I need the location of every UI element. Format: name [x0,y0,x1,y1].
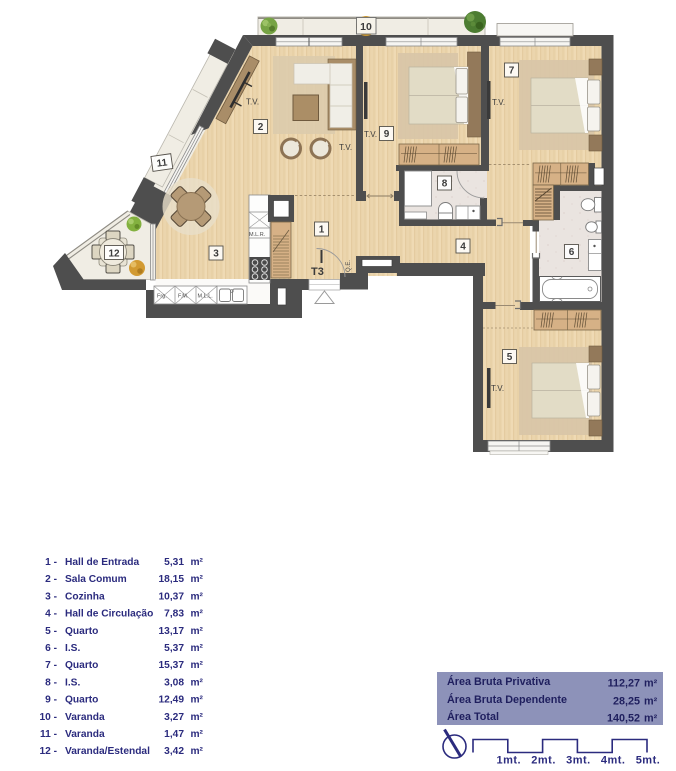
svg-text:m²: m² [191,609,204,620]
svg-text:M.L.L.: M.L.L. [198,294,214,300]
svg-text:T.V.: T.V. [492,98,505,107]
svg-text:m²: m² [191,677,204,688]
svg-text:Hall de Entrada: Hall de Entrada [65,557,139,568]
svg-text:9: 9 [384,129,390,140]
svg-text:5,31: 5,31 [164,557,184,568]
svg-text:5 -: 5 - [45,626,57,637]
svg-text:2: 2 [258,122,264,133]
svg-text:I.S.: I.S. [65,643,80,654]
svg-text:6: 6 [569,247,575,258]
svg-text:Varanda/Estendal: Varanda/Estendal [65,746,150,757]
svg-text:8 -: 8 - [45,677,57,688]
svg-text:F.M.: F.M. [178,294,189,300]
svg-text:7,83: 7,83 [164,609,184,620]
svg-text:3,27: 3,27 [164,712,184,723]
svg-text:112,27: 112,27 [608,678,640,690]
svg-text:m²: m² [191,729,204,740]
svg-text:I.S.: I.S. [65,677,80,688]
svg-text:13,17: 13,17 [159,626,185,637]
svg-text:M.L.R.: M.L.R. [249,232,266,238]
svg-text:T3: T3 [311,266,324,278]
svg-text:28,25: 28,25 [613,696,640,708]
svg-text:11: 11 [156,157,168,169]
svg-text:7 -: 7 - [45,660,57,671]
svg-text:m²: m² [191,712,204,723]
svg-text:1 -: 1 - [45,557,57,568]
svg-text:10,37: 10,37 [159,591,185,602]
svg-text:3,42: 3,42 [164,746,184,757]
svg-text:Área Bruta Privativa: Área Bruta Privativa [447,675,551,688]
svg-text:3 -: 3 - [45,591,57,602]
svg-text:T.V.: T.V. [246,98,259,107]
svg-text:2mt.: 2mt. [531,755,556,767]
svg-text:Varanda: Varanda [65,712,105,723]
svg-text:7: 7 [509,66,515,77]
svg-text:Quarto: Quarto [65,660,98,671]
svg-text:11 -: 11 - [40,729,57,740]
svg-text:Sala Comum: Sala Comum [65,574,127,585]
svg-text:m²: m² [191,557,204,568]
svg-text:m²: m² [191,626,204,637]
svg-text:1: 1 [319,225,325,236]
svg-text:1,47: 1,47 [164,729,184,740]
svg-text:Q.E.: Q.E. [346,260,352,272]
svg-text:Varanda: Varanda [65,729,105,740]
svg-text:10: 10 [360,21,372,33]
svg-text:5,37: 5,37 [164,643,184,654]
svg-text:8: 8 [442,179,448,190]
svg-text:Quarto: Quarto [65,695,98,706]
svg-text:T.V.: T.V. [491,384,504,393]
svg-text:2 -: 2 - [45,574,57,585]
svg-text:T.V.: T.V. [339,143,352,152]
svg-text:Hall de Circulação: Hall de Circulação [65,609,153,620]
svg-text:5: 5 [507,352,513,363]
svg-text:4mt.: 4mt. [601,755,626,767]
svg-text:4 -: 4 - [45,609,57,620]
svg-text:5mt.: 5mt. [636,755,661,767]
svg-text:Área Total: Área Total [447,710,499,723]
svg-text:m²: m² [644,713,658,725]
svg-text:4: 4 [460,242,466,253]
svg-text:Área Bruta Dependente: Área Bruta Dependente [447,693,567,706]
svg-text:3: 3 [213,249,219,260]
svg-text:m²: m² [644,678,658,690]
svg-text:Frg.: Frg. [157,294,167,300]
svg-text:Quarto: Quarto [65,626,98,637]
svg-text:m²: m² [191,746,204,757]
svg-text:m²: m² [191,643,204,654]
svg-text:1mt.: 1mt. [496,755,521,767]
svg-text:12: 12 [108,248,120,259]
svg-text:3,08: 3,08 [164,677,184,688]
svg-text:m²: m² [191,574,204,585]
svg-text:10 -: 10 - [39,712,57,723]
svg-text:12,49: 12,49 [159,695,185,706]
svg-text:15,37: 15,37 [159,660,185,671]
svg-text:m²: m² [644,696,658,708]
svg-text:Cozinha: Cozinha [65,591,105,602]
svg-text:9 -: 9 - [45,695,57,706]
svg-text:m²: m² [191,591,204,602]
svg-text:3mt.: 3mt. [566,755,591,767]
svg-text:18,15: 18,15 [159,574,185,585]
svg-text:140,52: 140,52 [607,713,640,725]
svg-text:6 -: 6 - [45,643,57,654]
svg-text:T.V.: T.V. [364,130,377,139]
svg-text:m²: m² [191,695,204,706]
svg-text:m²: m² [191,660,204,671]
svg-text:12 -: 12 - [39,746,57,757]
